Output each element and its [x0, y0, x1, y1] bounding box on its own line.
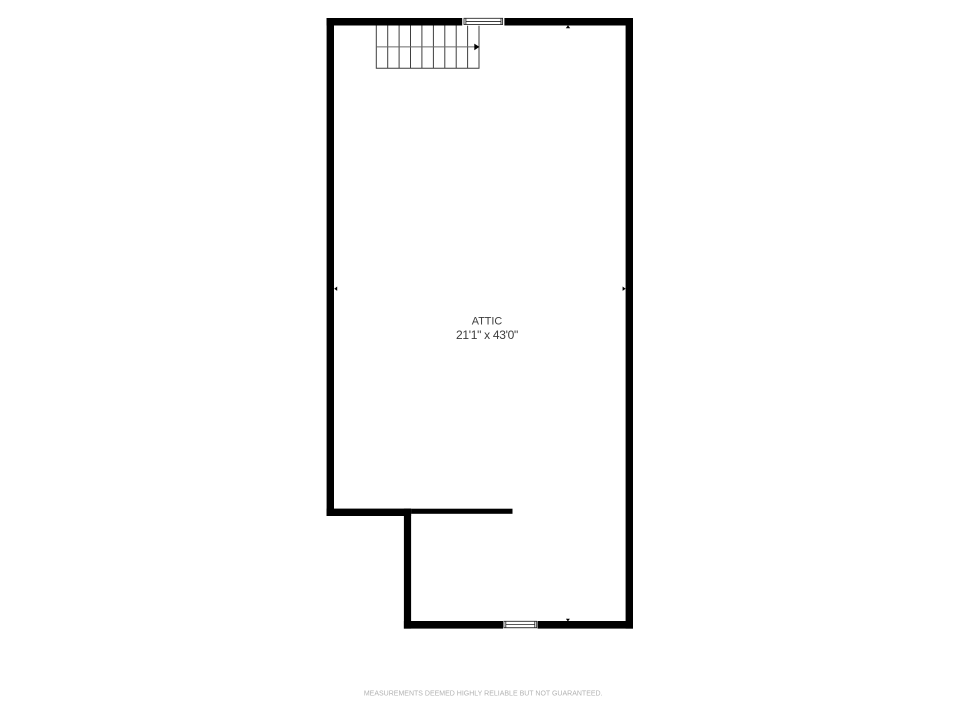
svg-text:ATTIC: ATTIC — [472, 316, 503, 328]
svg-text:MEASUREMENTS DEEMED HIGHLY REL: MEASUREMENTS DEEMED HIGHLY RELIABLE BUT … — [364, 691, 603, 698]
svg-text:21'1" x 43'0": 21'1" x 43'0" — [456, 328, 518, 342]
